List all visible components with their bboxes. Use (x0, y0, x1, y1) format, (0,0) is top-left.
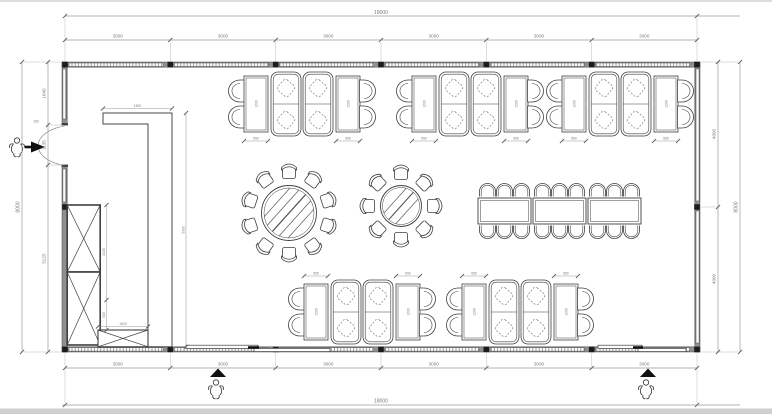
banquet-tables (478, 198, 641, 224)
dimension-layer-top: 18000 3000 3000 3000 3000 3000 3000 (63, 10, 740, 42)
dimension-label: 3000 (113, 34, 124, 39)
dimension-label: 3000 (113, 362, 124, 367)
storage-cabinet (67, 205, 100, 272)
dimension-label: 3000 (639, 34, 650, 39)
dimension-label: 3000 (429, 34, 440, 39)
dimension-label: 3000 (218, 362, 229, 367)
page-edge-bottom (0, 409, 772, 414)
storage-cabinet (67, 272, 100, 345)
round-table-10-seats (240, 164, 338, 262)
dimension-label: 150 (33, 120, 39, 124)
booth-unit (288, 272, 435, 344)
storage-cabinets (67, 205, 148, 347)
dimension-label: 1640 (42, 88, 47, 99)
dimension-label: 18000 (374, 10, 388, 16)
dimension-label: 1500 (134, 104, 142, 108)
dimension-label: 5225 (42, 253, 47, 264)
dimension-label: 1500 (119, 322, 127, 326)
dimension-layer-right: 4000 4000 8000 (711, 60, 742, 354)
entry-arrow-icon (210, 369, 226, 378)
bar-counter-partition (103, 113, 172, 347)
dimension-label: 2425 (102, 248, 106, 256)
dimension-label: 18000 (374, 399, 388, 405)
dimension-label: 3000 (323, 34, 334, 39)
dimension-layer-bottom: 3000 3000 3000 3000 3000 3000 18000 (62, 362, 740, 408)
dimension-label: 5385 (181, 226, 185, 234)
booth-unit (228, 72, 375, 143)
booth-row-top (228, 72, 693, 143)
interior-dimensions: 1500 5385 2425 550 1500 (96, 104, 188, 349)
floor-plan-canvas: 1200 1200 650 650 650 650 (0, 0, 772, 414)
booth-unit (546, 72, 693, 143)
booth-unit (396, 72, 543, 143)
dimension-label: 3000 (218, 34, 229, 39)
entry-arrow-icon (640, 369, 656, 378)
dimension-label: 8000 (733, 201, 739, 212)
entry-bottom-left (208, 369, 226, 399)
banquet-table-row (478, 184, 641, 239)
booth-row-bottom (288, 272, 593, 344)
dimension-label: 4000 (711, 128, 716, 139)
dimension-layer-left: 1640 1135 5225 8000 (15, 60, 50, 354)
dimension-label: 4000 (711, 273, 716, 284)
entry-door-left: 150 (9, 120, 68, 167)
dimension-label: 8000 (15, 201, 21, 212)
dimension-label: 3000 (429, 362, 440, 367)
floor-plan-svg: 1200 1200 650 650 650 650 (0, 0, 772, 414)
dimension-label: 3000 (323, 362, 334, 367)
low-cabinet (98, 330, 148, 347)
dimension-label: 3000 (639, 362, 650, 367)
page-edge-top (0, 0, 772, 2)
round-table-8-seats (360, 165, 442, 247)
dimension-label: 550 (102, 312, 106, 318)
dimension-label: 3000 (534, 34, 545, 39)
entry-bottom-right (638, 369, 656, 399)
dimension-label: 1135 (42, 140, 47, 150)
dimension-label: 3000 (534, 362, 545, 367)
booth-unit (446, 272, 593, 344)
